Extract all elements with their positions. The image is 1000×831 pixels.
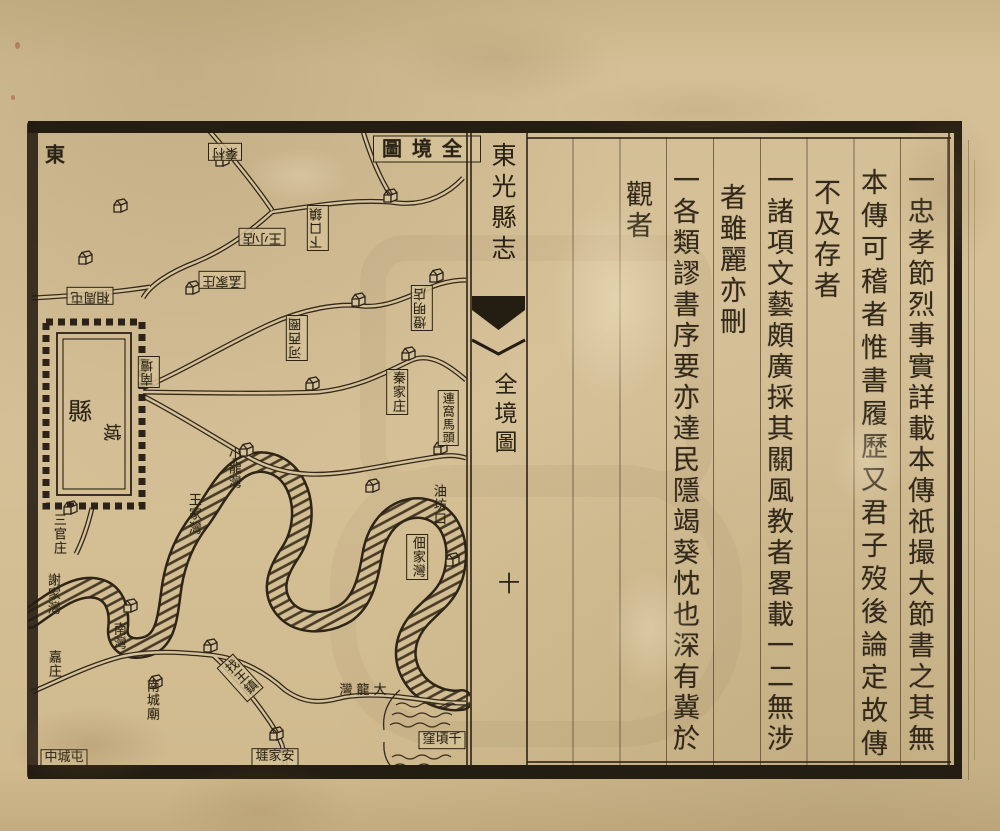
text-column-5: 者雖麗亦刪 bbox=[717, 183, 744, 338]
right-border bbox=[954, 121, 962, 779]
text-column-1: 一忠孝節烈事實詳載本傳祇撮大節書之其無 bbox=[905, 166, 932, 755]
house-icon bbox=[186, 281, 199, 294]
house-icon bbox=[240, 443, 253, 456]
house-icon bbox=[430, 269, 443, 282]
left-torn-edge bbox=[27, 121, 38, 779]
text-column-3: 不及存者 bbox=[811, 178, 838, 302]
text-column-6: 一各類謬書序要亦達民隱竭葵忱也深有冀於 bbox=[670, 166, 697, 755]
village-label: 南城廟 bbox=[144, 679, 158, 721]
fold-rule-right bbox=[526, 133, 528, 767]
bottom-border bbox=[28, 765, 962, 779]
city-wall bbox=[46, 322, 142, 506]
wharf-label: 連窩馬頭 bbox=[438, 390, 459, 446]
city-label-xian: 縣 bbox=[68, 399, 92, 424]
city-label-cheng: 城 bbox=[101, 423, 120, 441]
temple-label: 南壇 bbox=[138, 356, 160, 388]
village-label: 孟家庄 bbox=[198, 271, 245, 289]
village-label: 河西圈 bbox=[286, 315, 308, 361]
village-label: 堐家安 bbox=[251, 748, 298, 766]
house-icon bbox=[366, 479, 379, 492]
canal-bend-label: 謝家灣 bbox=[45, 573, 59, 615]
village-label: 三官庄 bbox=[51, 513, 65, 555]
house-icon bbox=[402, 347, 415, 360]
canal-bend-label: 灣龍大 bbox=[339, 684, 390, 698]
page-edge-line bbox=[968, 140, 969, 780]
bottom-inner-rule bbox=[527, 761, 951, 763]
house-icon bbox=[306, 377, 319, 390]
fold-rule-left2 bbox=[470, 133, 472, 767]
house-icon bbox=[79, 251, 92, 264]
village-label: 秦家庄 bbox=[386, 369, 408, 415]
page-edge-line bbox=[974, 160, 975, 760]
village-label: 相周屯 bbox=[66, 287, 113, 305]
house-icon bbox=[352, 293, 365, 306]
red-speck bbox=[15, 42, 20, 49]
canal-bend-label: 南灣 bbox=[111, 622, 125, 650]
house-icon bbox=[204, 639, 217, 652]
village-label: 嘉庄 bbox=[46, 650, 60, 678]
village-label: 下口鎮 bbox=[307, 205, 329, 251]
text-column-7: 觀者 bbox=[623, 180, 650, 242]
village-label: 王小店 bbox=[238, 228, 285, 246]
house-icon bbox=[124, 599, 137, 612]
right-inner-rule bbox=[948, 133, 950, 767]
scanned-book-spread: 圖境全 東 縣 城 秦村 王小店 相周屯 孟家庄 下口鎮 燈明店 河西圈 南壇 … bbox=[0, 0, 1000, 831]
text-column-2: 本傳可稽者惟書履歷又君子歿後論定故傳 bbox=[858, 168, 885, 762]
fishtail-mark bbox=[471, 292, 527, 358]
top-border bbox=[28, 121, 962, 133]
section-title: 全境圖 bbox=[486, 372, 520, 459]
canal-bend-label: 佃家灣 bbox=[406, 534, 428, 580]
canal-bend-label: 王家灣 bbox=[186, 493, 200, 535]
book-title: 東光縣志 bbox=[484, 142, 520, 266]
village-label: 燈明店 bbox=[411, 285, 433, 331]
fold-rule-left bbox=[466, 133, 468, 767]
red-speck bbox=[11, 95, 15, 100]
page-number: 十 bbox=[490, 572, 522, 600]
text-column-4: 一諸項文藝頗廣採其關風教者畧載一二無涉 bbox=[764, 166, 791, 755]
village-label: 油坊口 bbox=[431, 484, 445, 526]
village-label: 秦村 bbox=[208, 143, 242, 161]
map-title: 圖境全 bbox=[373, 136, 481, 163]
top-inner-rule bbox=[527, 137, 951, 139]
direction-marker-east: 東 bbox=[45, 145, 65, 166]
marsh-label: 窪頃千 bbox=[418, 731, 465, 749]
canal-bend-label: 小龍灣 bbox=[226, 447, 240, 489]
house-icon bbox=[114, 199, 127, 212]
